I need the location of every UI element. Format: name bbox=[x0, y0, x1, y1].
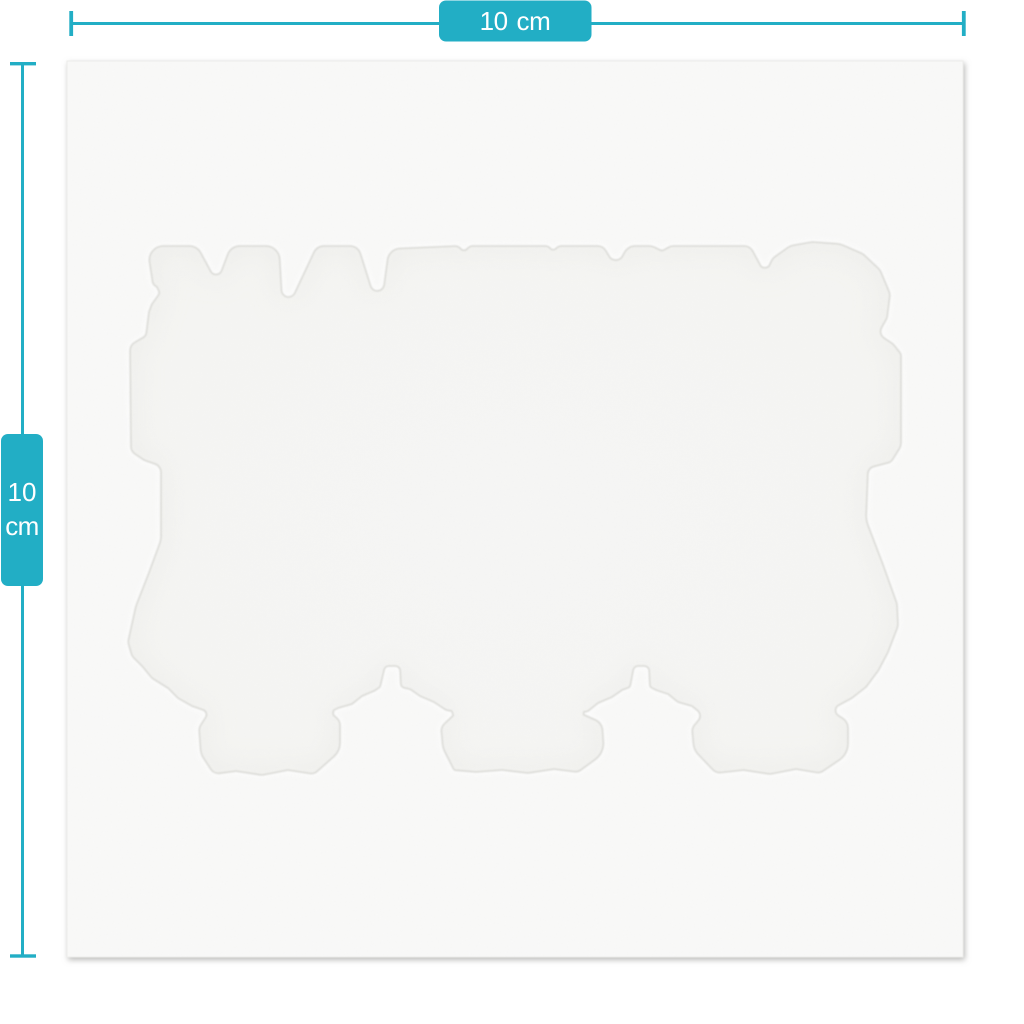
svg-text:10 cm: 10 cm bbox=[480, 6, 551, 36]
svg-text:10: 10 bbox=[8, 477, 37, 507]
svg-text:cm: cm bbox=[5, 511, 38, 541]
